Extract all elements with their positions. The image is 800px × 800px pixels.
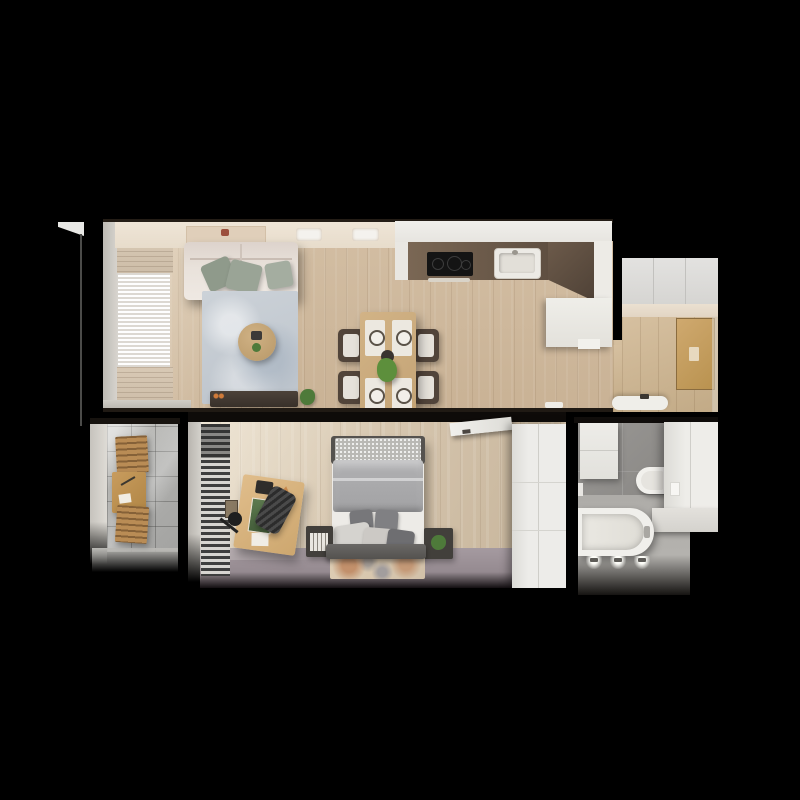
bed-duvet-fold [333, 478, 423, 481]
room-bathroom [574, 417, 720, 585]
hall-wall-strip [622, 304, 718, 317]
nightstand-right [424, 528, 453, 559]
balcony-chair-upper [115, 435, 149, 474]
kitchen-sink [494, 248, 541, 279]
dining-chair-4 [413, 371, 439, 404]
room-bedroom [188, 412, 568, 588]
coffee-table [238, 323, 276, 361]
wall-light-2 [610, 556, 626, 569]
tp-holder [578, 483, 583, 496]
hall-wardrobe [622, 258, 718, 304]
kitchen-column-step [578, 339, 600, 349]
floor-plan-render [0, 0, 800, 800]
coffee-table-tray [251, 331, 262, 340]
utensil-rail [428, 278, 470, 282]
room-balcony [88, 418, 180, 578]
bedroom-wardrobe [512, 424, 566, 588]
sofa-pillow-2 [225, 259, 263, 296]
wall-light-1 [586, 556, 602, 569]
bathroom-vanity [580, 423, 618, 479]
wall-left [103, 222, 118, 412]
spotlight-2 [352, 228, 379, 241]
sofa-pillow-3 [264, 260, 294, 290]
entry-door [676, 318, 715, 390]
placemat-1 [365, 320, 385, 356]
bathtub [578, 508, 654, 556]
wall-light-3 [634, 556, 650, 569]
balcony-apron [92, 548, 178, 572]
desk-papers [251, 533, 268, 546]
headboard [326, 544, 426, 559]
kitchen-column-top [594, 241, 612, 303]
tv-bench-candles [213, 393, 225, 399]
room-hall [613, 252, 718, 412]
bed-blanket [335, 438, 421, 462]
balcony-railing-line [80, 234, 82, 426]
table-plant [377, 358, 397, 382]
bathtub-faucet [644, 526, 650, 538]
hall-bench-item [640, 394, 649, 399]
balcony-wall-left [90, 424, 107, 564]
bed-duvet [333, 460, 423, 512]
shelf-decor [221, 229, 229, 236]
bedroom-wall-left [188, 422, 201, 582]
spotlight-1 [296, 228, 322, 241]
coffee-table-plant [252, 343, 261, 352]
bedroom-rug [330, 556, 425, 579]
kitchen-cabinet-end [395, 242, 408, 280]
bathroom-ledge [652, 508, 718, 532]
cooktop [427, 252, 473, 276]
kitchen-counter-corner [548, 242, 596, 302]
hall-right-wall [712, 316, 718, 412]
room-kitchen [395, 221, 613, 366]
kitchen-upper-cabinets [395, 221, 612, 242]
bench-plant [300, 389, 315, 405]
balcony-chair-lower [115, 505, 150, 544]
